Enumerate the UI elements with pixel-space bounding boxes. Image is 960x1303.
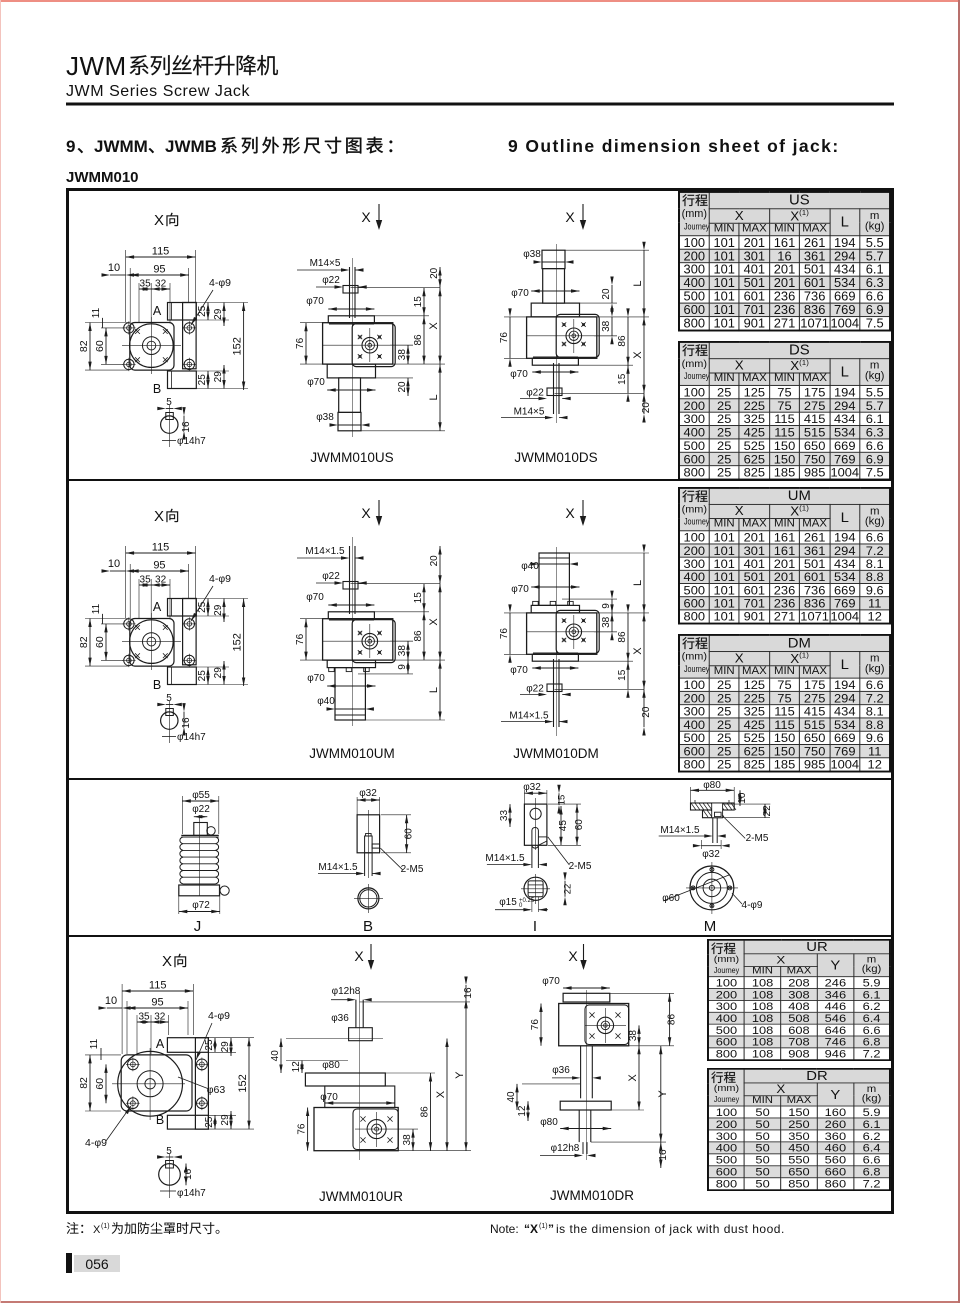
svg-text:M14×1.5: M14×1.5	[485, 853, 525, 864]
svg-text:JWMM010DS: JWMM010DS	[514, 450, 597, 465]
svg-text:φ15: φ15	[499, 897, 517, 908]
svg-text:60: 60	[94, 340, 106, 352]
svg-text:16: 16	[181, 421, 192, 433]
svg-text:12: 12	[291, 1061, 302, 1073]
svg-text:X: X	[632, 647, 644, 655]
svg-text:35: 35	[140, 279, 152, 290]
svg-text:60: 60	[404, 828, 415, 840]
svg-text:4-φ9: 4-φ9	[209, 573, 231, 585]
svg-text:M14×1.5: M14×1.5	[509, 711, 549, 722]
svg-text:M14×1.5: M14×1.5	[318, 862, 358, 873]
svg-text:X: X	[632, 351, 644, 359]
svg-text:X: X	[361, 209, 371, 225]
svg-text:4-φ9: 4-φ9	[85, 1137, 107, 1149]
svg-text:86: 86	[617, 335, 628, 347]
svg-text:20: 20	[397, 381, 408, 393]
svg-text:4-φ9: 4-φ9	[742, 900, 763, 911]
svg-text:φ72: φ72	[192, 900, 210, 911]
svg-text:φ12h8: φ12h8	[332, 986, 361, 997]
svg-text:(1): (1)	[101, 1223, 110, 1230]
svg-text:JWMM010UM: JWMM010UM	[309, 746, 395, 761]
svg-text:φ14h7: φ14h7	[177, 1188, 206, 1199]
svg-text:φ70: φ70	[307, 673, 325, 684]
svg-text:JWM: JWM	[66, 51, 127, 81]
svg-text:φ63: φ63	[207, 1084, 226, 1096]
svg-text:L: L	[428, 394, 440, 400]
svg-text:φ80: φ80	[703, 780, 721, 791]
svg-text:B: B	[153, 382, 161, 396]
svg-text:25: 25	[204, 1039, 215, 1051]
svg-text:76: 76	[297, 1123, 308, 1135]
svg-text:φ32: φ32	[702, 849, 720, 860]
svg-text:φ55: φ55	[192, 790, 210, 801]
svg-text:76: 76	[499, 628, 510, 640]
svg-text:60: 60	[94, 1078, 106, 1090]
svg-text:X: X	[354, 948, 364, 964]
svg-text:φ22: φ22	[322, 275, 340, 286]
svg-text:JWMM010UR: JWMM010UR	[319, 1189, 403, 1204]
svg-text:60: 60	[94, 636, 106, 648]
svg-text:95: 95	[151, 997, 163, 1009]
svg-text:115: 115	[152, 542, 170, 554]
svg-text:10: 10	[108, 558, 120, 570]
svg-text:φ38: φ38	[523, 249, 541, 260]
svg-text:φ22: φ22	[526, 684, 544, 695]
svg-text:φ22: φ22	[192, 804, 210, 815]
svg-text:φ70: φ70	[307, 377, 325, 388]
svg-text:Note:: Note:	[490, 1222, 519, 1236]
svg-text:JWMB: JWMB	[165, 137, 217, 156]
svg-text:35: 35	[138, 1012, 150, 1023]
svg-text:29: 29	[220, 1114, 231, 1126]
svg-text:35: 35	[140, 575, 152, 586]
svg-text:25: 25	[197, 601, 208, 613]
svg-text:M14×5: M14×5	[310, 258, 341, 269]
svg-text:X: X	[627, 1074, 639, 1082]
svg-text:φ14h7: φ14h7	[177, 436, 206, 447]
svg-text:9: 9	[66, 137, 75, 156]
svg-text:X: X	[565, 505, 575, 521]
svg-text:25: 25	[197, 670, 208, 682]
svg-text:22: 22	[762, 805, 773, 817]
svg-text:X: X	[93, 1224, 101, 1236]
svg-text:2-M5: 2-M5	[401, 864, 424, 875]
svg-text:X: X	[565, 209, 575, 225]
svg-text:29: 29	[213, 667, 224, 679]
svg-text:JWMM010DM: JWMM010DM	[513, 746, 599, 761]
svg-text:L: L	[632, 280, 644, 286]
svg-text:152: 152	[232, 337, 244, 355]
svg-text:056: 056	[85, 1256, 109, 1272]
svg-text:86: 86	[413, 334, 424, 346]
svg-text:115: 115	[152, 246, 170, 258]
svg-text:φ70: φ70	[511, 288, 529, 299]
svg-text:φ32: φ32	[359, 788, 377, 799]
svg-text:25: 25	[204, 1116, 215, 1128]
svg-text:86: 86	[420, 1106, 431, 1118]
svg-text:29: 29	[213, 308, 224, 320]
svg-text:L: L	[632, 580, 644, 586]
svg-text:φ70: φ70	[320, 1092, 338, 1103]
svg-text:φ80: φ80	[540, 1117, 558, 1128]
svg-text:φ70: φ70	[511, 584, 529, 595]
svg-text:95: 95	[153, 560, 165, 572]
svg-text:22: 22	[563, 884, 574, 895]
svg-text:86: 86	[617, 631, 628, 643]
svg-text:16: 16	[181, 717, 192, 729]
svg-text:M: M	[704, 918, 717, 935]
svg-text:4-φ9: 4-φ9	[208, 1010, 230, 1022]
svg-text:12: 12	[517, 1105, 528, 1117]
svg-text:φ70: φ70	[542, 976, 560, 987]
svg-text:I: I	[533, 918, 537, 935]
svg-text:45: 45	[558, 820, 569, 832]
svg-text:10: 10	[108, 262, 120, 274]
svg-text:16: 16	[183, 1168, 194, 1180]
svg-text:”: ”	[548, 1222, 554, 1236]
svg-text:38: 38	[397, 645, 408, 657]
svg-text:33: 33	[499, 810, 510, 822]
svg-text:5: 5	[166, 693, 172, 704]
svg-text:X: X	[428, 322, 440, 330]
svg-text:φ80: φ80	[322, 1060, 340, 1071]
svg-text:38: 38	[628, 1030, 639, 1042]
svg-text:9: 9	[601, 603, 612, 609]
svg-text:38: 38	[601, 616, 612, 628]
svg-text:38: 38	[601, 320, 612, 332]
svg-text:φ14h7: φ14h7	[177, 732, 206, 743]
svg-text:25: 25	[197, 305, 208, 317]
svg-text:15: 15	[557, 795, 568, 806]
svg-text:JWMM: JWMM	[94, 137, 148, 156]
svg-text:20: 20	[641, 706, 652, 718]
svg-text:φ70: φ70	[306, 592, 324, 603]
svg-text:82: 82	[78, 636, 90, 648]
svg-text:M14×1.5: M14×1.5	[660, 825, 700, 836]
svg-text:25: 25	[197, 374, 208, 386]
svg-text:5: 5	[166, 397, 172, 408]
svg-text:11: 11	[91, 603, 102, 614]
svg-text:M14×5: M14×5	[514, 407, 545, 418]
svg-text:86: 86	[413, 630, 424, 642]
svg-text:φ22: φ22	[526, 388, 544, 399]
svg-text:40: 40	[270, 1050, 281, 1062]
svg-text:B: B	[153, 678, 161, 692]
svg-text:φ60: φ60	[662, 893, 680, 904]
svg-text:JWM Series Screw Jack: JWM Series Screw Jack	[66, 83, 250, 100]
svg-text:is the dimension of jack with: is the dimension of jack with dust hood.	[556, 1222, 785, 1236]
svg-text:φ36: φ36	[331, 1013, 349, 1024]
svg-text:38: 38	[402, 1134, 413, 1146]
svg-text:X: X	[154, 212, 164, 229]
svg-text:20: 20	[429, 267, 440, 279]
svg-text:9: 9	[397, 664, 408, 670]
svg-text:38: 38	[397, 349, 408, 361]
svg-text:2-M5: 2-M5	[569, 861, 592, 872]
svg-text:φ70: φ70	[510, 665, 528, 676]
svg-text:M14×1.5: M14×1.5	[305, 546, 345, 557]
svg-text:A: A	[153, 304, 162, 318]
svg-text:20: 20	[429, 555, 440, 567]
svg-text:9 Outline dimension sheet of: 9 Outline dimension sheet of jack:	[508, 136, 840, 156]
svg-text:Y: Y	[657, 1090, 669, 1098]
svg-text:X: X	[361, 505, 371, 521]
svg-text:15: 15	[617, 373, 628, 385]
svg-text:16: 16	[463, 987, 474, 999]
svg-text:115: 115	[149, 980, 167, 992]
svg-text:82: 82	[78, 340, 90, 352]
svg-text:φ32: φ32	[523, 782, 541, 793]
svg-text:10: 10	[105, 995, 117, 1007]
svg-text:A: A	[153, 600, 162, 614]
svg-text:φ12h8: φ12h8	[551, 1143, 580, 1154]
svg-text:“X: “X	[524, 1222, 538, 1236]
svg-text:2-M5: 2-M5	[746, 833, 769, 844]
svg-text:86: 86	[667, 1014, 678, 1026]
svg-text:16: 16	[658, 1149, 669, 1161]
svg-text:15: 15	[413, 592, 424, 604]
svg-text:φ38: φ38	[316, 412, 334, 423]
svg-text:40: 40	[506, 1091, 517, 1103]
svg-text:15: 15	[413, 296, 424, 308]
svg-text:152: 152	[237, 1074, 249, 1092]
svg-text:X: X	[154, 508, 164, 525]
svg-text:152: 152	[232, 633, 244, 651]
svg-text:11: 11	[89, 1038, 100, 1049]
svg-text:32: 32	[154, 1012, 166, 1023]
svg-text:φ22: φ22	[322, 571, 340, 582]
svg-text:φ40: φ40	[317, 696, 335, 707]
svg-text:φ70: φ70	[510, 369, 528, 380]
svg-text:(1): (1)	[539, 1223, 548, 1230]
svg-text:76: 76	[295, 633, 306, 645]
svg-text:JWMM010: JWMM010	[66, 169, 139, 186]
svg-text:11: 11	[91, 307, 102, 318]
svg-text:φ36: φ36	[552, 1065, 570, 1076]
svg-text:32: 32	[155, 575, 167, 586]
svg-text:82: 82	[78, 1077, 90, 1089]
svg-text:20: 20	[601, 288, 612, 300]
svg-text:20: 20	[641, 402, 652, 414]
svg-text:JWMM010US: JWMM010US	[310, 450, 393, 465]
svg-text:φ40: φ40	[521, 561, 539, 572]
svg-text:L: L	[428, 687, 440, 693]
svg-text:B: B	[363, 918, 373, 935]
svg-text:95: 95	[153, 264, 165, 276]
svg-text:X: X	[162, 953, 172, 970]
svg-text:A: A	[156, 1037, 165, 1051]
svg-text:29: 29	[220, 1041, 231, 1053]
svg-text:X: X	[428, 618, 440, 626]
svg-text:29: 29	[213, 604, 224, 616]
svg-text:JWMM010DR: JWMM010DR	[550, 1188, 634, 1203]
svg-text:76: 76	[295, 337, 306, 349]
svg-text:X: X	[435, 1090, 447, 1098]
svg-text:5: 5	[166, 1146, 172, 1157]
svg-text:76: 76	[499, 332, 510, 344]
svg-text:76: 76	[530, 1019, 541, 1031]
svg-text:φ70: φ70	[306, 296, 324, 307]
svg-text:X: X	[568, 948, 578, 964]
svg-text:29: 29	[213, 371, 224, 383]
svg-text:32: 32	[155, 279, 167, 290]
svg-text:60: 60	[574, 819, 585, 831]
svg-text:10: 10	[737, 792, 748, 804]
svg-text:4-φ9: 4-φ9	[209, 277, 231, 289]
svg-text:15: 15	[617, 669, 628, 681]
svg-text:Y: Y	[454, 1071, 466, 1079]
svg-text:J: J	[194, 918, 202, 935]
